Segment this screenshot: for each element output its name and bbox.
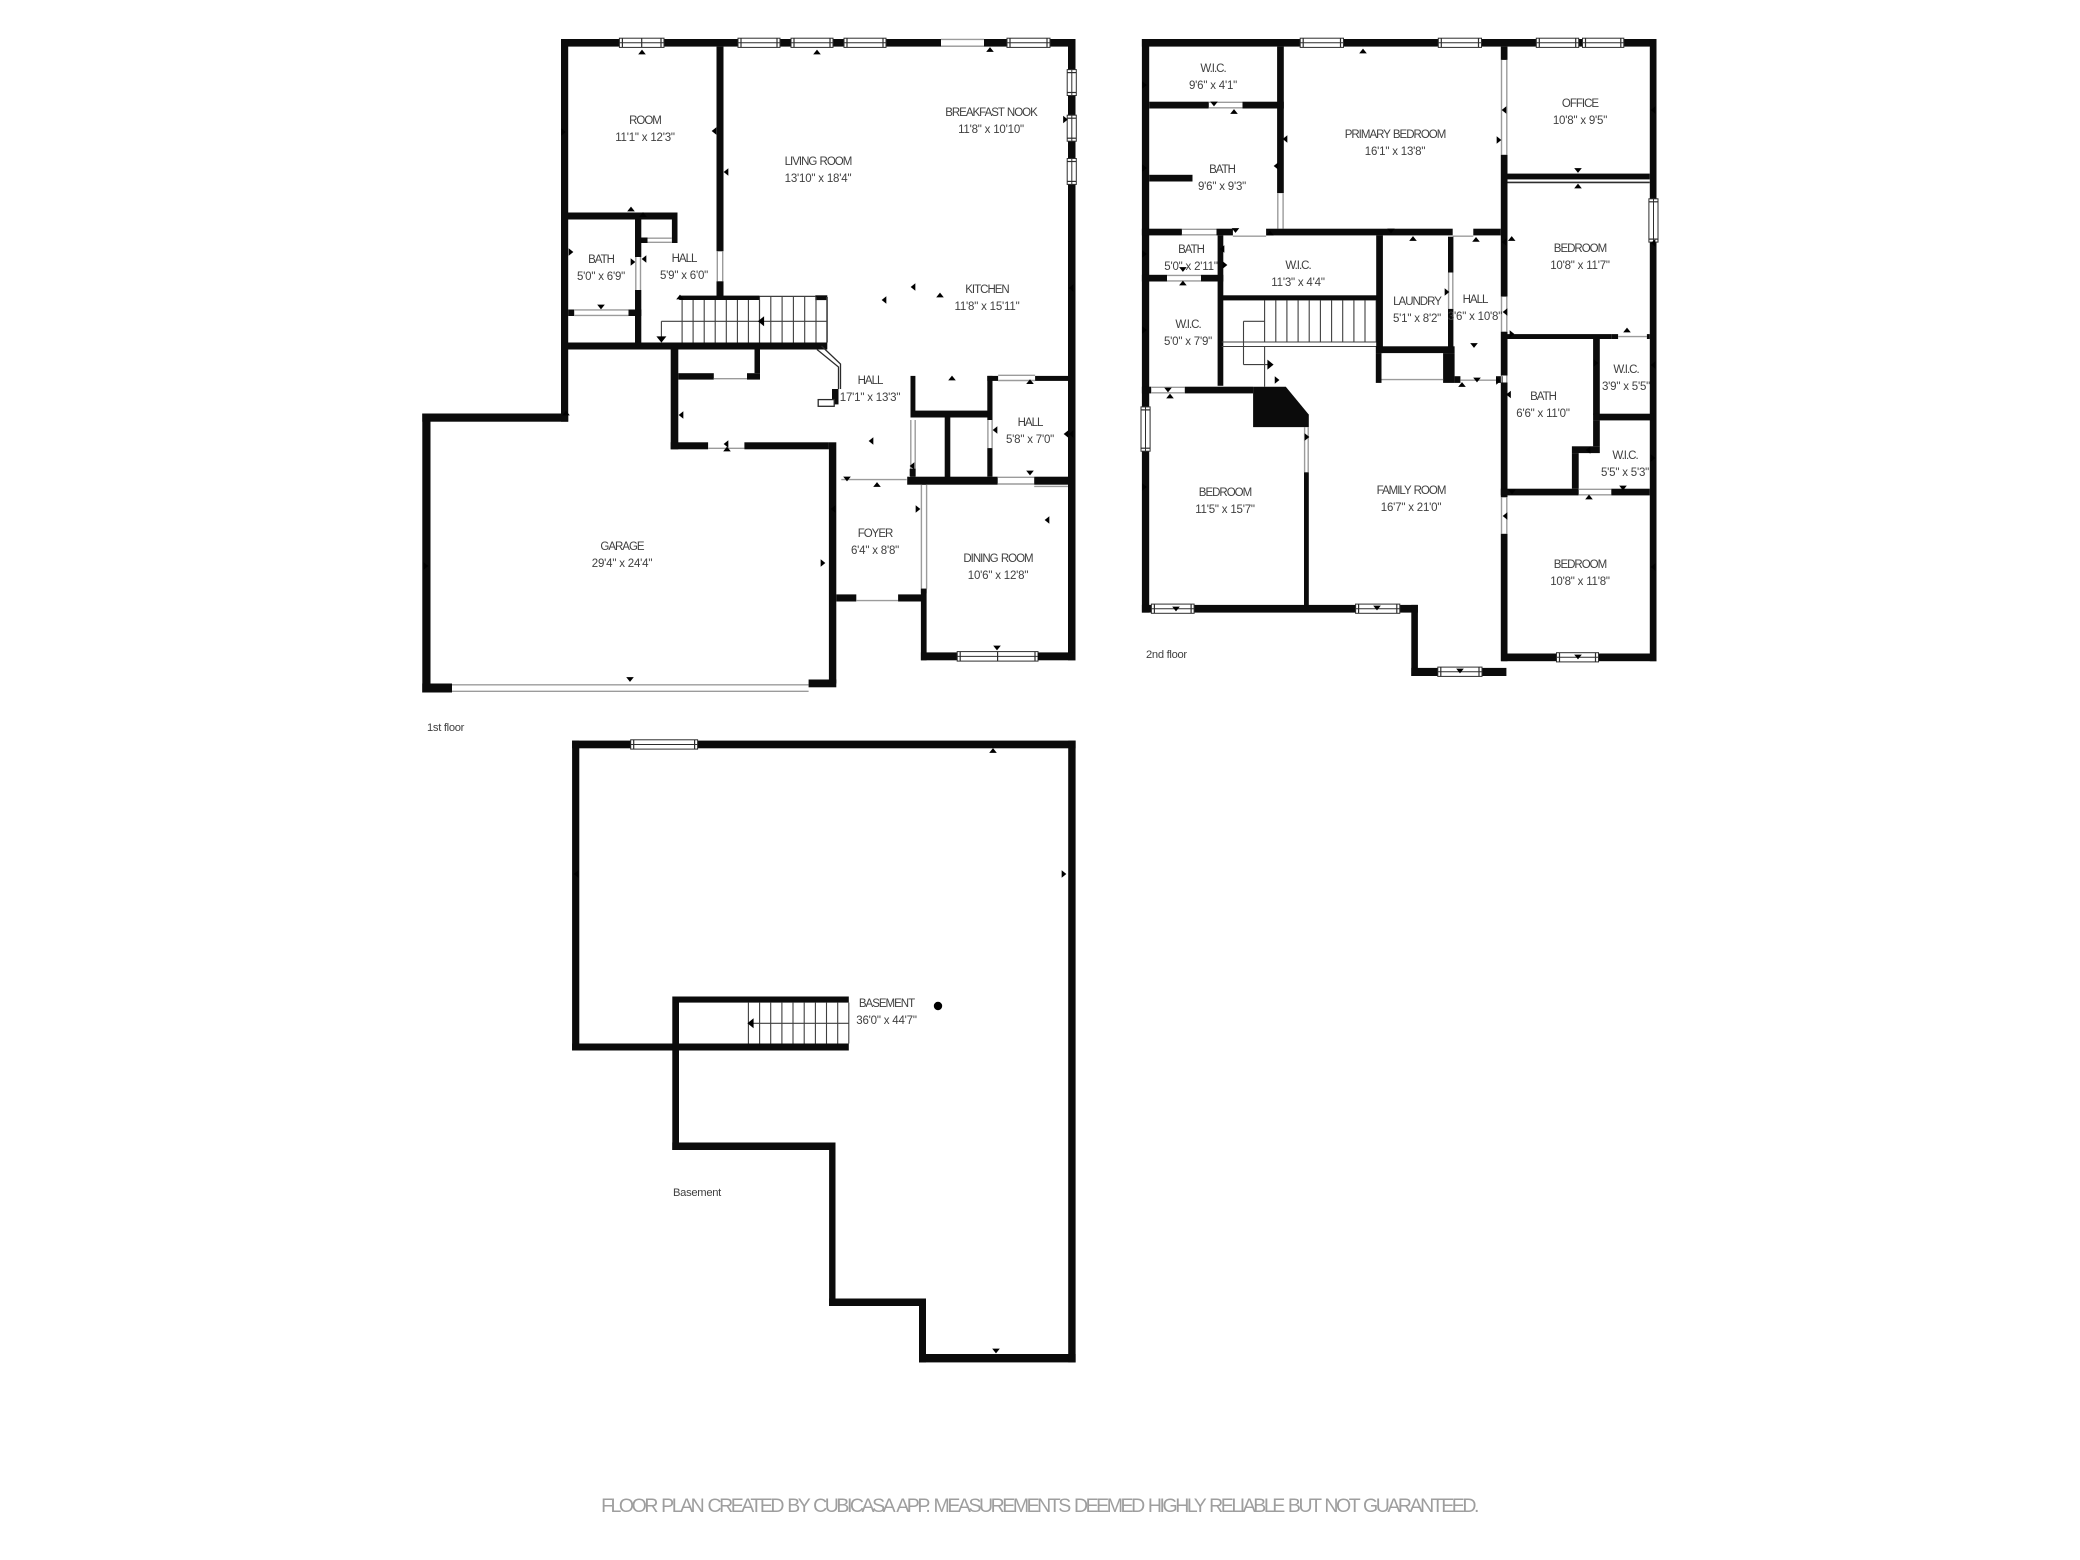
svg-text:11'3" x 4'4": 11'3" x 4'4"	[1271, 277, 1325, 289]
svg-text:BEDROOM: BEDROOM	[1554, 559, 1607, 571]
svg-text:9'6" x 9'3": 9'6" x 9'3"	[1198, 181, 1246, 193]
svg-text:ROOM: ROOM	[629, 115, 661, 127]
svg-text:10'8" x 11'8": 10'8" x 11'8"	[1550, 576, 1610, 588]
svg-text:BATH: BATH	[1530, 391, 1557, 403]
svg-text:16'7" x 21'0": 16'7" x 21'0"	[1381, 502, 1442, 514]
svg-text:W.I.C.: W.I.C.	[1285, 260, 1311, 272]
svg-text:BATH: BATH	[1209, 164, 1236, 176]
svg-text:11'5" x 15'7": 11'5" x 15'7"	[1195, 504, 1255, 516]
svg-text:W.I.C.: W.I.C.	[1613, 364, 1639, 376]
svg-text:BREAKFAST NOOK: BREAKFAST NOOK	[945, 107, 1038, 119]
svg-text:BATH: BATH	[1178, 244, 1205, 256]
svg-text:HALL: HALL	[1018, 417, 1044, 429]
svg-text:9'6" x 4'1": 9'6" x 4'1"	[1189, 80, 1237, 92]
svg-text:5'5" x 5'3": 5'5" x 5'3"	[1601, 467, 1649, 479]
svg-text:BEDROOM: BEDROOM	[1554, 243, 1607, 255]
svg-text:BEDROOM: BEDROOM	[1199, 487, 1252, 499]
svg-text:5'0" x 6'9": 5'0" x 6'9"	[577, 271, 625, 283]
svg-text:6'6" x 11'0": 6'6" x 11'0"	[1516, 408, 1570, 420]
svg-text:LAUNDRY: LAUNDRY	[1393, 296, 1442, 308]
svg-text:HALL: HALL	[858, 375, 884, 387]
svg-text:GARAGE: GARAGE	[600, 541, 645, 553]
svg-text:FOYER: FOYER	[858, 528, 893, 540]
svg-text:17'1" x 13'3": 17'1" x 13'3"	[840, 392, 901, 404]
svg-text:W.I.C.: W.I.C.	[1175, 319, 1201, 331]
svg-text:DINING ROOM: DINING ROOM	[963, 553, 1033, 565]
svg-text:KITCHEN: KITCHEN	[965, 284, 1009, 296]
svg-text:3'9" x 5'5": 3'9" x 5'5"	[1602, 381, 1650, 393]
svg-text:HALL: HALL	[672, 253, 698, 265]
svg-text:5'9" x 6'0": 5'9" x 6'0"	[660, 270, 708, 282]
svg-text:11'8" x 15'11": 11'8" x 15'11"	[955, 301, 1020, 313]
svg-text:1st floor: 1st floor	[427, 722, 465, 734]
svg-text:10'8" x 11'7": 10'8" x 11'7"	[1550, 260, 1610, 272]
svg-text:PRIMARY BEDROOM: PRIMARY BEDROOM	[1345, 129, 1446, 141]
svg-text:W.I.C.: W.I.C.	[1612, 450, 1638, 462]
svg-text:HALL: HALL	[1463, 294, 1489, 306]
svg-text:LIVING ROOM: LIVING ROOM	[785, 156, 852, 168]
svg-text:BASEMENT: BASEMENT	[859, 998, 915, 1010]
svg-text:13'10" x 18'4": 13'10" x 18'4"	[785, 173, 852, 185]
svg-text:5'0" x 7'9": 5'0" x 7'9"	[1164, 336, 1212, 348]
svg-text:5'0" x 2'11": 5'0" x 2'11"	[1164, 261, 1218, 273]
svg-text:11'8" x 10'10": 11'8" x 10'10"	[958, 124, 1024, 136]
svg-text:29'4" x 24'4": 29'4" x 24'4"	[592, 558, 653, 570]
svg-text:BATH: BATH	[588, 254, 615, 266]
svg-text:W.I.C.: W.I.C.	[1200, 63, 1226, 75]
svg-text:OFFICE: OFFICE	[1562, 98, 1599, 110]
svg-text:FAMILY ROOM: FAMILY ROOM	[1377, 485, 1446, 497]
svg-text:11'1" x 12'3": 11'1" x 12'3"	[615, 132, 675, 144]
svg-text:16'1" x 13'8": 16'1" x 13'8"	[1365, 146, 1426, 158]
svg-text:3'6" x 10'8": 3'6" x 10'8"	[1448, 311, 1502, 323]
svg-text:Basement: Basement	[673, 1187, 722, 1199]
svg-text:2nd floor: 2nd floor	[1146, 649, 1187, 661]
svg-text:10'8" x 9'5": 10'8" x 9'5"	[1553, 115, 1607, 127]
svg-text:5'8" x 7'0": 5'8" x 7'0"	[1006, 434, 1054, 446]
svg-text:5'1" x 8'2": 5'1" x 8'2"	[1393, 313, 1441, 325]
svg-text:36'0" x 44'7": 36'0" x 44'7"	[856, 1015, 917, 1027]
svg-text:10'6" x 12'8": 10'6" x 12'8"	[968, 570, 1029, 582]
svg-text:FLOOR PLAN CREATED BY CUBICASA: FLOOR PLAN CREATED BY CUBICASA APP. MEAS…	[601, 1495, 1478, 1517]
svg-text:6'4" x 8'8": 6'4" x 8'8"	[851, 545, 899, 557]
